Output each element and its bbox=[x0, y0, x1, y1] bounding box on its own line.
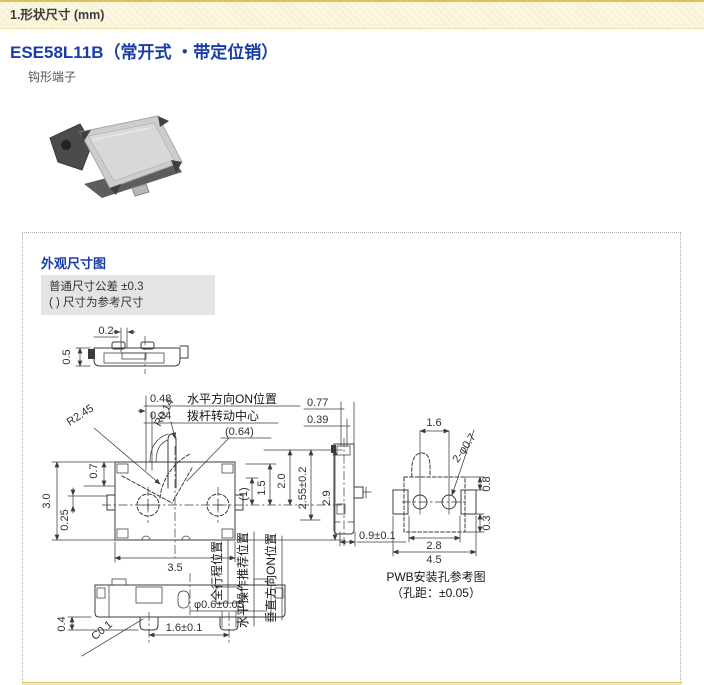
dim-0-5: 0.5 bbox=[61, 349, 73, 364]
dim-2-55: 2.55±0.2 bbox=[297, 467, 309, 510]
pwb-dim-2-8: 2.8 bbox=[426, 540, 441, 552]
product-photo bbox=[36, 100, 191, 215]
dim-0-4: 0.4 bbox=[56, 616, 68, 631]
switch-photo-illustration bbox=[50, 116, 182, 198]
dim-1-6-pin: 1.6±0.1 bbox=[166, 622, 203, 634]
pwb-dim-0-3: 0.3 bbox=[481, 515, 493, 530]
pwb-caption-line1: PWB安装孔参考图 bbox=[386, 569, 485, 584]
label-horizontal-recommended: 水平操作推荐位置 bbox=[235, 532, 250, 628]
spec-page: 1.形状尺寸 (mm) ESE58L11B（常开式 ・带定位销） 钩形端子 外观… bbox=[0, 0, 704, 685]
dim-0-48: 0.48 bbox=[150, 393, 171, 405]
dim-0-39: 0.39 bbox=[307, 414, 328, 426]
page-title: ESE58L11B（常开式 ・带定位销） bbox=[10, 38, 278, 63]
terminal-type-label: 钩形端子 bbox=[28, 68, 76, 85]
dim-2-0: 2.0 bbox=[276, 473, 288, 488]
label-on-horizontal: 水平方向ON位置 bbox=[187, 391, 277, 406]
dim-3-0: 3.0 bbox=[41, 493, 53, 508]
section-header-bar: 1.形状尺寸 (mm) bbox=[0, 0, 704, 29]
side-view: 0.77 0.39 0.9±0.1 bbox=[304, 397, 406, 548]
outline-box-title: 外观尺寸图 bbox=[41, 253, 106, 272]
pwb-dim-holes: 2-φ0.7 bbox=[450, 432, 478, 465]
tolerance-note: 普通尺寸公差 ±0.3 ( ) 尺寸为参考尺寸 bbox=[41, 275, 215, 315]
dim-0-7: 0.7 bbox=[88, 463, 100, 478]
dim-0-2: 0.2 bbox=[98, 325, 113, 337]
dim-phi0-6: φ0.6±0.05 bbox=[194, 599, 244, 611]
dim-r2-45: R2.45 bbox=[65, 402, 96, 428]
dim-0-24: 0.24 bbox=[150, 410, 171, 422]
top-profile-view: 0.2 0.5 bbox=[61, 325, 188, 374]
section-header-text: 1.形状尺寸 (mm) bbox=[0, 2, 704, 28]
label-lever-pivot: 拨杆转动中心 bbox=[187, 408, 259, 423]
dim-1: (1) bbox=[238, 487, 250, 500]
dim-0-77: 0.77 bbox=[307, 397, 328, 409]
pwb-dim-0-8: 0.8 bbox=[481, 476, 493, 491]
dim-c0-1: C0.1 bbox=[89, 619, 115, 643]
pwb-hole-layout: 1.6 2-φ0.7 0.8 0.3 2.8 bbox=[386, 417, 493, 600]
pwb-dim-1-6: 1.6 bbox=[426, 417, 441, 429]
dim-0-64: (0.64) bbox=[225, 426, 254, 438]
front-view: R0.14 R2.45 0.48 水平方向ON位置 0.24 拨杆转动中心 (0… bbox=[41, 391, 342, 574]
label-vertical-on: 垂直方向ON位置 bbox=[263, 533, 278, 623]
dim-3-5: 3.5 bbox=[167, 562, 182, 574]
tolerance-note-line1: 普通尺寸公差 ±0.3 bbox=[49, 279, 207, 295]
dimension-drawing: 0.2 0.5 bbox=[24, 318, 680, 680]
pwb-caption-line2: （孔距：±0.05） bbox=[391, 586, 481, 600]
dim-0-9: 0.9±0.1 bbox=[359, 530, 396, 542]
bottom-view: 0.4 C0.1 φ0.6±0.05 1.6±0.1 bbox=[56, 573, 285, 656]
dim-0-25: 0.25 bbox=[59, 509, 71, 530]
tolerance-note-line2: ( ) 尺寸为参考尺寸 bbox=[49, 295, 207, 311]
label-full-travel: 全行程位置 bbox=[209, 541, 224, 601]
dim-2-9: 2.9 bbox=[321, 490, 333, 505]
dim-1-5: 1.5 bbox=[256, 480, 268, 495]
pwb-dim-4-5: 4.5 bbox=[426, 554, 441, 566]
